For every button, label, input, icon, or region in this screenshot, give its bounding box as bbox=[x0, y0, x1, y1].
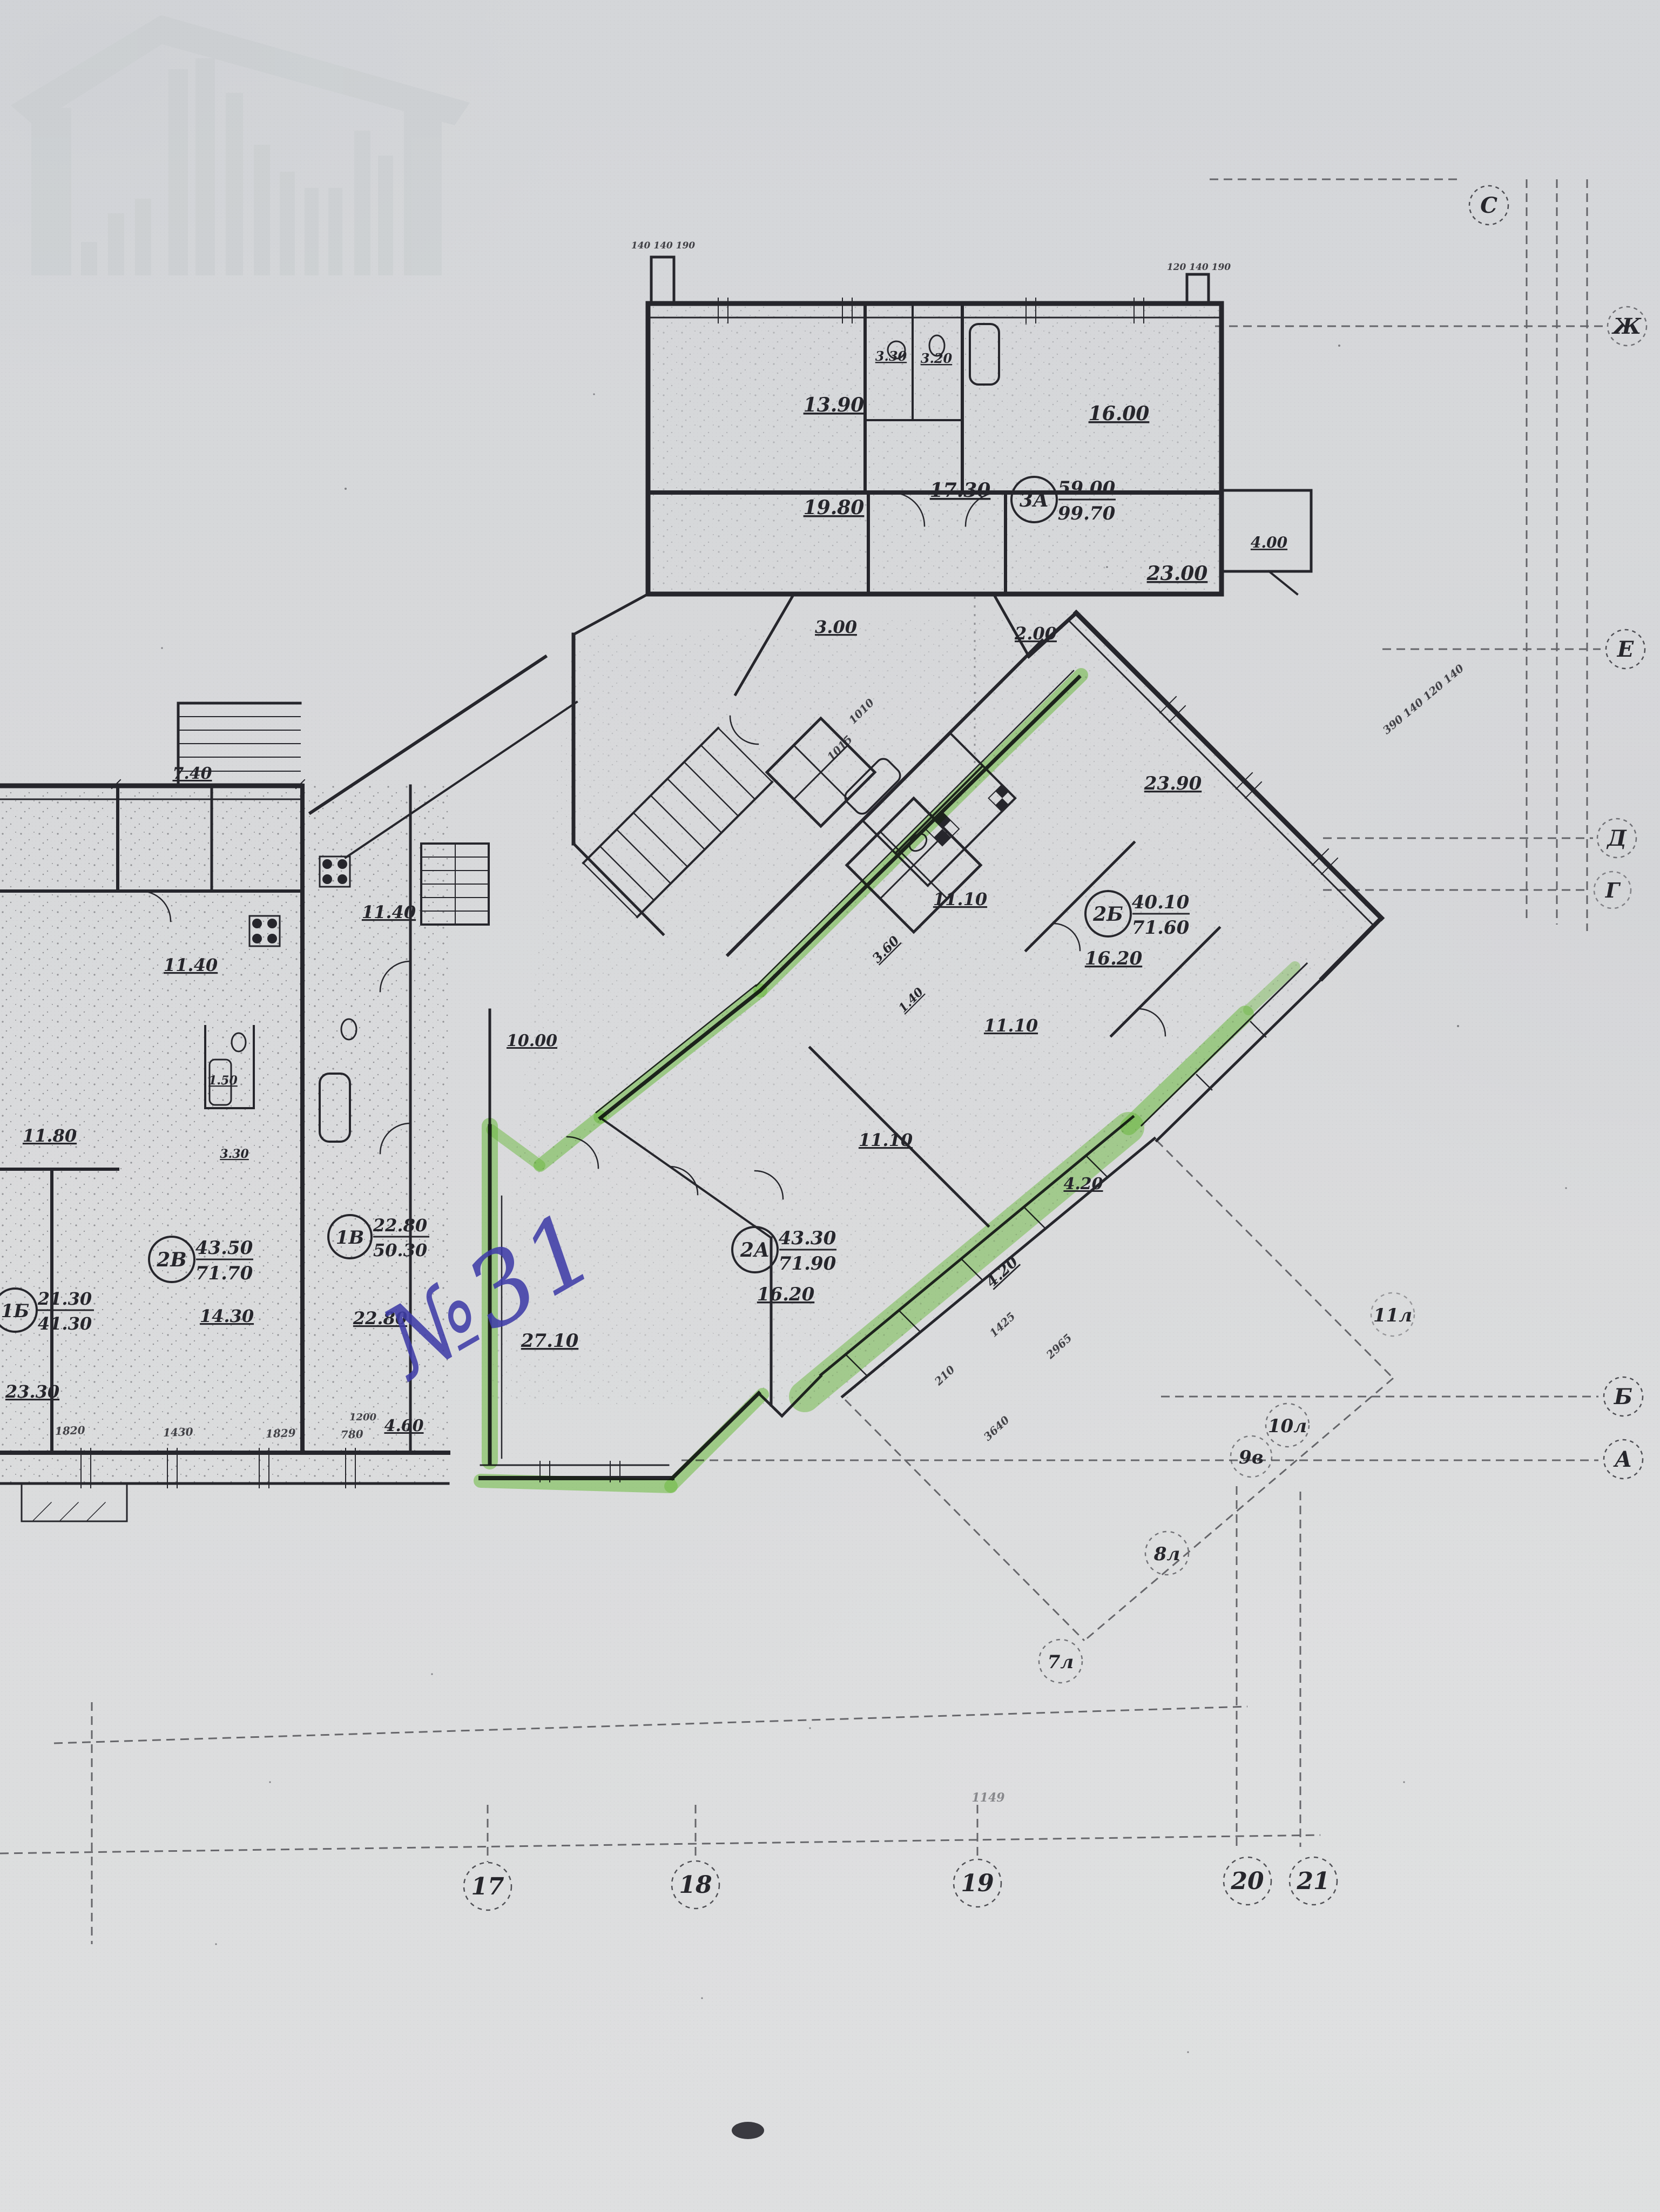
room-area-label: 23.90 bbox=[1144, 773, 1202, 794]
watermark-building-logo bbox=[11, 15, 470, 275]
apartment-area-top: 40.10 bbox=[1132, 892, 1190, 913]
apartment-area-bottom: 71.70 bbox=[195, 1263, 253, 1284]
axis-letter: Б bbox=[1614, 1384, 1632, 1410]
axis-letter: С bbox=[1480, 193, 1497, 218]
room-area-label: 17.30 bbox=[930, 479, 991, 502]
floor-plan-drawing: 13.90 16.00 19.80 17.30 23.00 3.30 3.20 … bbox=[0, 0, 1660, 2212]
apartment-code: 2А bbox=[740, 1239, 770, 1262]
axis-letter: Ж bbox=[1611, 314, 1642, 339]
balcony-icon bbox=[22, 1483, 127, 1521]
dimension-label: 140 140 190 bbox=[631, 240, 695, 251]
room-area-label: 3.30 bbox=[220, 1147, 249, 1161]
room-area-label: 3.00 bbox=[815, 617, 857, 637]
floor-plan-photo: 13.90 16.00 19.80 17.30 23.00 3.30 3.20 … bbox=[0, 0, 1660, 2212]
axis-id: 11л bbox=[1373, 1305, 1412, 1326]
apartment-area-bottom: 41.30 bbox=[38, 1313, 92, 1334]
axis-id: 7л bbox=[1048, 1651, 1074, 1673]
axis-letter: А bbox=[1613, 1447, 1632, 1472]
dimension-label: 780 bbox=[340, 1427, 363, 1441]
dimension-label: 1200 bbox=[349, 1412, 377, 1423]
room-area-label: 4.00 bbox=[1251, 534, 1288, 551]
apartment-area-bottom: 50.30 bbox=[373, 1240, 427, 1260]
room-area-label: 4.20 bbox=[1063, 1175, 1103, 1193]
axis-intermediate-bubbles: 11л 10л 9в 8л 7л bbox=[1039, 1293, 1414, 1683]
axis-number: 19 bbox=[961, 1870, 994, 1897]
apartment-area-top: 43.30 bbox=[779, 1228, 836, 1249]
apartment-area-top: 43.50 bbox=[195, 1237, 253, 1259]
dimension-label: 2965 bbox=[1043, 1331, 1075, 1361]
room-area-label: 13.90 bbox=[804, 394, 865, 416]
apartment-area-bottom: 71.90 bbox=[779, 1253, 836, 1274]
apartment-code: 2В bbox=[156, 1249, 186, 1271]
dimension-label: 1820 bbox=[55, 1424, 86, 1438]
room-area-label: 11.40 bbox=[362, 902, 416, 922]
dimension-label: 1149 bbox=[971, 1791, 1004, 1805]
room-area-label: 16.20 bbox=[1085, 948, 1143, 969]
dimension-label: 120 140 190 bbox=[1167, 262, 1231, 273]
axis-number-bubbles: 17 18 19 20 21 bbox=[464, 1857, 1337, 1910]
apartment-area-top: 22.80 bbox=[373, 1215, 427, 1236]
apartment-code: 2Б bbox=[1092, 903, 1123, 926]
room-area-label: 23.00 bbox=[1146, 562, 1208, 585]
room-area-label: 16.00 bbox=[1089, 402, 1150, 425]
axis-letter-bubbles: С Ж Е Д Г Б А bbox=[1469, 186, 1646, 1479]
room-area-label: 14.30 bbox=[200, 1306, 254, 1326]
room-area-label: 3.30 bbox=[875, 348, 907, 364]
apartment-area-bottom: 99.70 bbox=[1058, 503, 1116, 524]
apartment-area-top: 59.00 bbox=[1058, 477, 1116, 499]
room-area-label: 11.10 bbox=[984, 1015, 1038, 1036]
dimension-label: 7.40 bbox=[172, 764, 212, 783]
room-area-label: 11.10 bbox=[933, 889, 987, 909]
room-area-label: 10.00 bbox=[507, 1031, 557, 1050]
dimension-label: 4.60 bbox=[384, 1417, 423, 1435]
room-area-label: 11.80 bbox=[23, 1125, 77, 1146]
room-area-label: 19.80 bbox=[804, 496, 865, 519]
room-area-label: 11.40 bbox=[164, 955, 218, 975]
axis-number: 17 bbox=[471, 1873, 504, 1900]
room-area-label: 3.20 bbox=[921, 350, 953, 366]
dimension-label: 1430 bbox=[163, 1425, 194, 1439]
apartment-code: 1Б bbox=[1, 1300, 30, 1322]
dimension-label: 210 bbox=[932, 1363, 957, 1388]
apartment-code: 1В bbox=[336, 1227, 364, 1249]
room-area-label: 2.00 bbox=[1014, 623, 1057, 644]
axis-letter: Е bbox=[1617, 637, 1634, 662]
axis-number: 20 bbox=[1230, 1867, 1264, 1895]
dimension-label: 1829 bbox=[266, 1426, 296, 1440]
dimension-label: 1425 bbox=[987, 1310, 1018, 1340]
axis-letter: Г bbox=[1605, 878, 1621, 902]
dimension-label: 390 140 120 140 bbox=[1380, 662, 1466, 737]
axis-number: 21 bbox=[1296, 1867, 1330, 1895]
dimension-label: 3640 bbox=[981, 1413, 1012, 1444]
apartment-area-bottom: 71.60 bbox=[1132, 917, 1190, 939]
apartment-area-top: 21.30 bbox=[37, 1289, 92, 1309]
axis-id: 10л bbox=[1268, 1415, 1307, 1437]
apartment-code: 3А bbox=[1020, 489, 1049, 511]
axis-id: 9в bbox=[1239, 1447, 1264, 1468]
room-area-label: 11.10 bbox=[859, 1130, 913, 1150]
axis-number: 18 bbox=[679, 1871, 712, 1899]
room-area-label: 23.30 bbox=[5, 1381, 59, 1402]
ink-smudge bbox=[732, 2122, 764, 2139]
axis-id: 8л bbox=[1153, 1543, 1180, 1565]
axis-letter: Д bbox=[1606, 826, 1627, 851]
room-area-label: 16.20 bbox=[757, 1284, 815, 1305]
room-area-label: 1.50 bbox=[208, 1074, 238, 1088]
